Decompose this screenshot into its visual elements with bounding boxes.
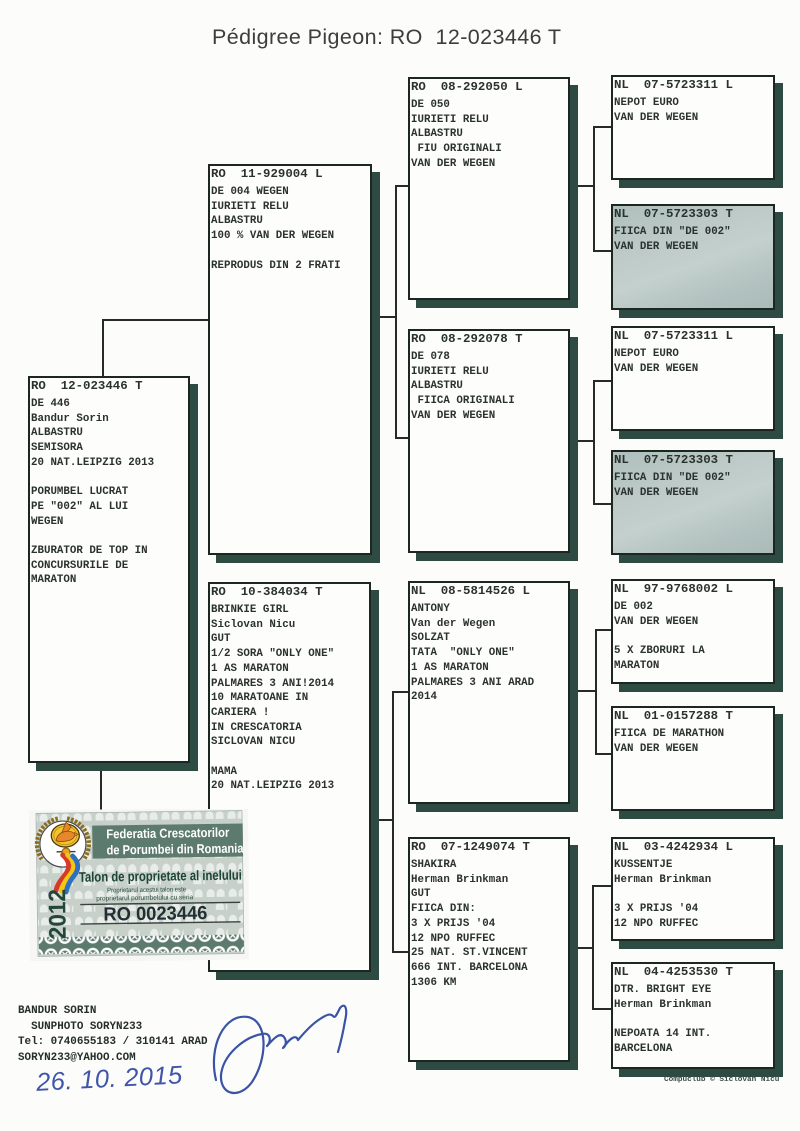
svg-text:Federatia Crescatorilor: Federatia Crescatorilor (106, 825, 229, 842)
svg-text:26. 10. 2015: 26. 10. 2015 (34, 1061, 183, 1097)
svg-text:Proprietarul acestui talon est: Proprietarul acestui talon este (107, 886, 186, 894)
svg-text:Talon de proprietate al inelul: Talon de proprietate al inelului (79, 867, 242, 885)
svg-text:de Porumbei din Romania: de Porumbei din Romania (106, 841, 244, 858)
svg-text:proprietarul porumbelului cu s: proprietarul porumbelului cu seria (96, 894, 193, 902)
svg-text:2012: 2012 (44, 889, 72, 939)
